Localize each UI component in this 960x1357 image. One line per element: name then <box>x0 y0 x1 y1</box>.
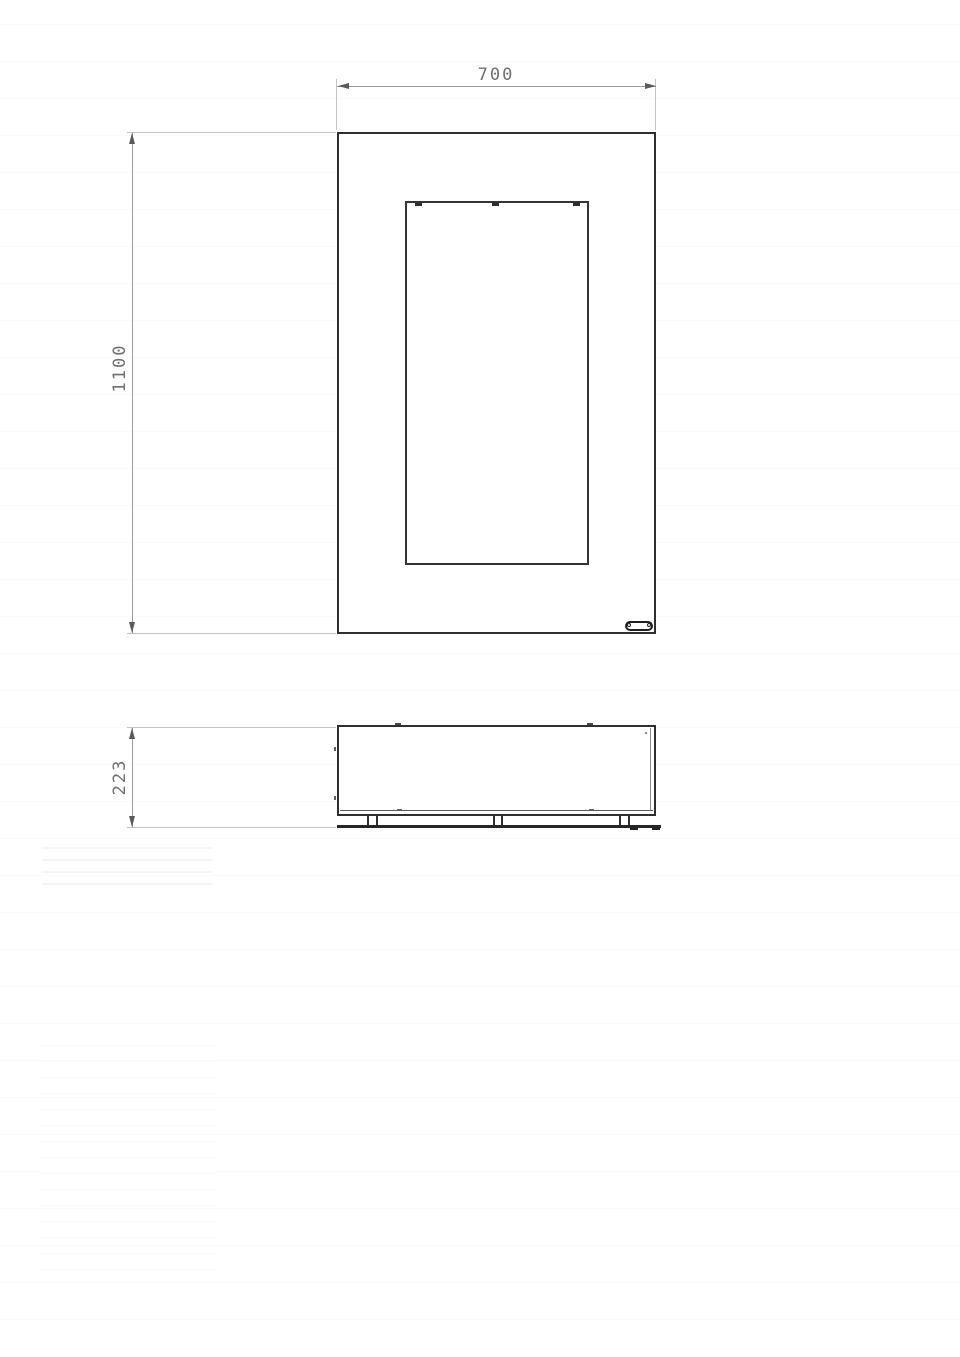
depth-body-outline <box>337 725 656 816</box>
dim-arrow-up-icon <box>129 133 135 144</box>
rail-leg <box>376 816 378 825</box>
extension-line <box>127 727 336 728</box>
depth-bottom-inner-line <box>340 810 653 811</box>
extension-line <box>127 132 336 133</box>
mounting-rail <box>337 825 661 828</box>
edge-dot <box>645 732 647 734</box>
foot-tick <box>630 828 638 830</box>
edge-tick <box>334 747 336 751</box>
height-dimension-label: 1100 <box>109 340 131 396</box>
dim-arrow-left-icon <box>338 83 349 89</box>
edge-tick <box>589 809 594 811</box>
rail-leg <box>493 816 495 825</box>
front-inner-opening <box>405 201 589 565</box>
width-dimension-label: 700 <box>466 64 526 86</box>
dim-arrow-right-icon <box>645 83 656 89</box>
background-noise-patch <box>40 1040 215 1270</box>
clip-tick <box>492 203 499 206</box>
edge-tick <box>334 796 336 800</box>
edge-tick <box>587 723 593 725</box>
extension-line <box>127 827 336 828</box>
dim-arrow-down-icon <box>129 816 135 827</box>
rail-leg <box>628 816 630 825</box>
background-noise-patch <box>42 845 212 885</box>
clip-tick <box>415 203 422 206</box>
clip-tick <box>573 203 580 206</box>
dimension-line <box>132 133 133 633</box>
extension-line <box>127 633 336 634</box>
rail-leg <box>501 816 503 825</box>
foot-tick <box>652 828 660 830</box>
nameplate-badge-icon <box>625 621 653 631</box>
technical-drawing-sheet: 700 1100 223 <box>0 0 960 1357</box>
dimension-line <box>337 86 656 87</box>
depth-right-inner-line <box>650 728 651 810</box>
edge-tick <box>395 723 401 725</box>
dim-arrow-down-icon <box>129 622 135 633</box>
screw-icon <box>647 623 651 627</box>
dim-arrow-up-icon <box>129 728 135 739</box>
rail-leg <box>619 816 621 825</box>
edge-tick <box>397 809 402 811</box>
rail-leg <box>367 816 369 825</box>
depth-dimension-label: 223 <box>109 751 131 803</box>
screw-icon <box>627 623 631 627</box>
dimension-line <box>132 728 133 827</box>
